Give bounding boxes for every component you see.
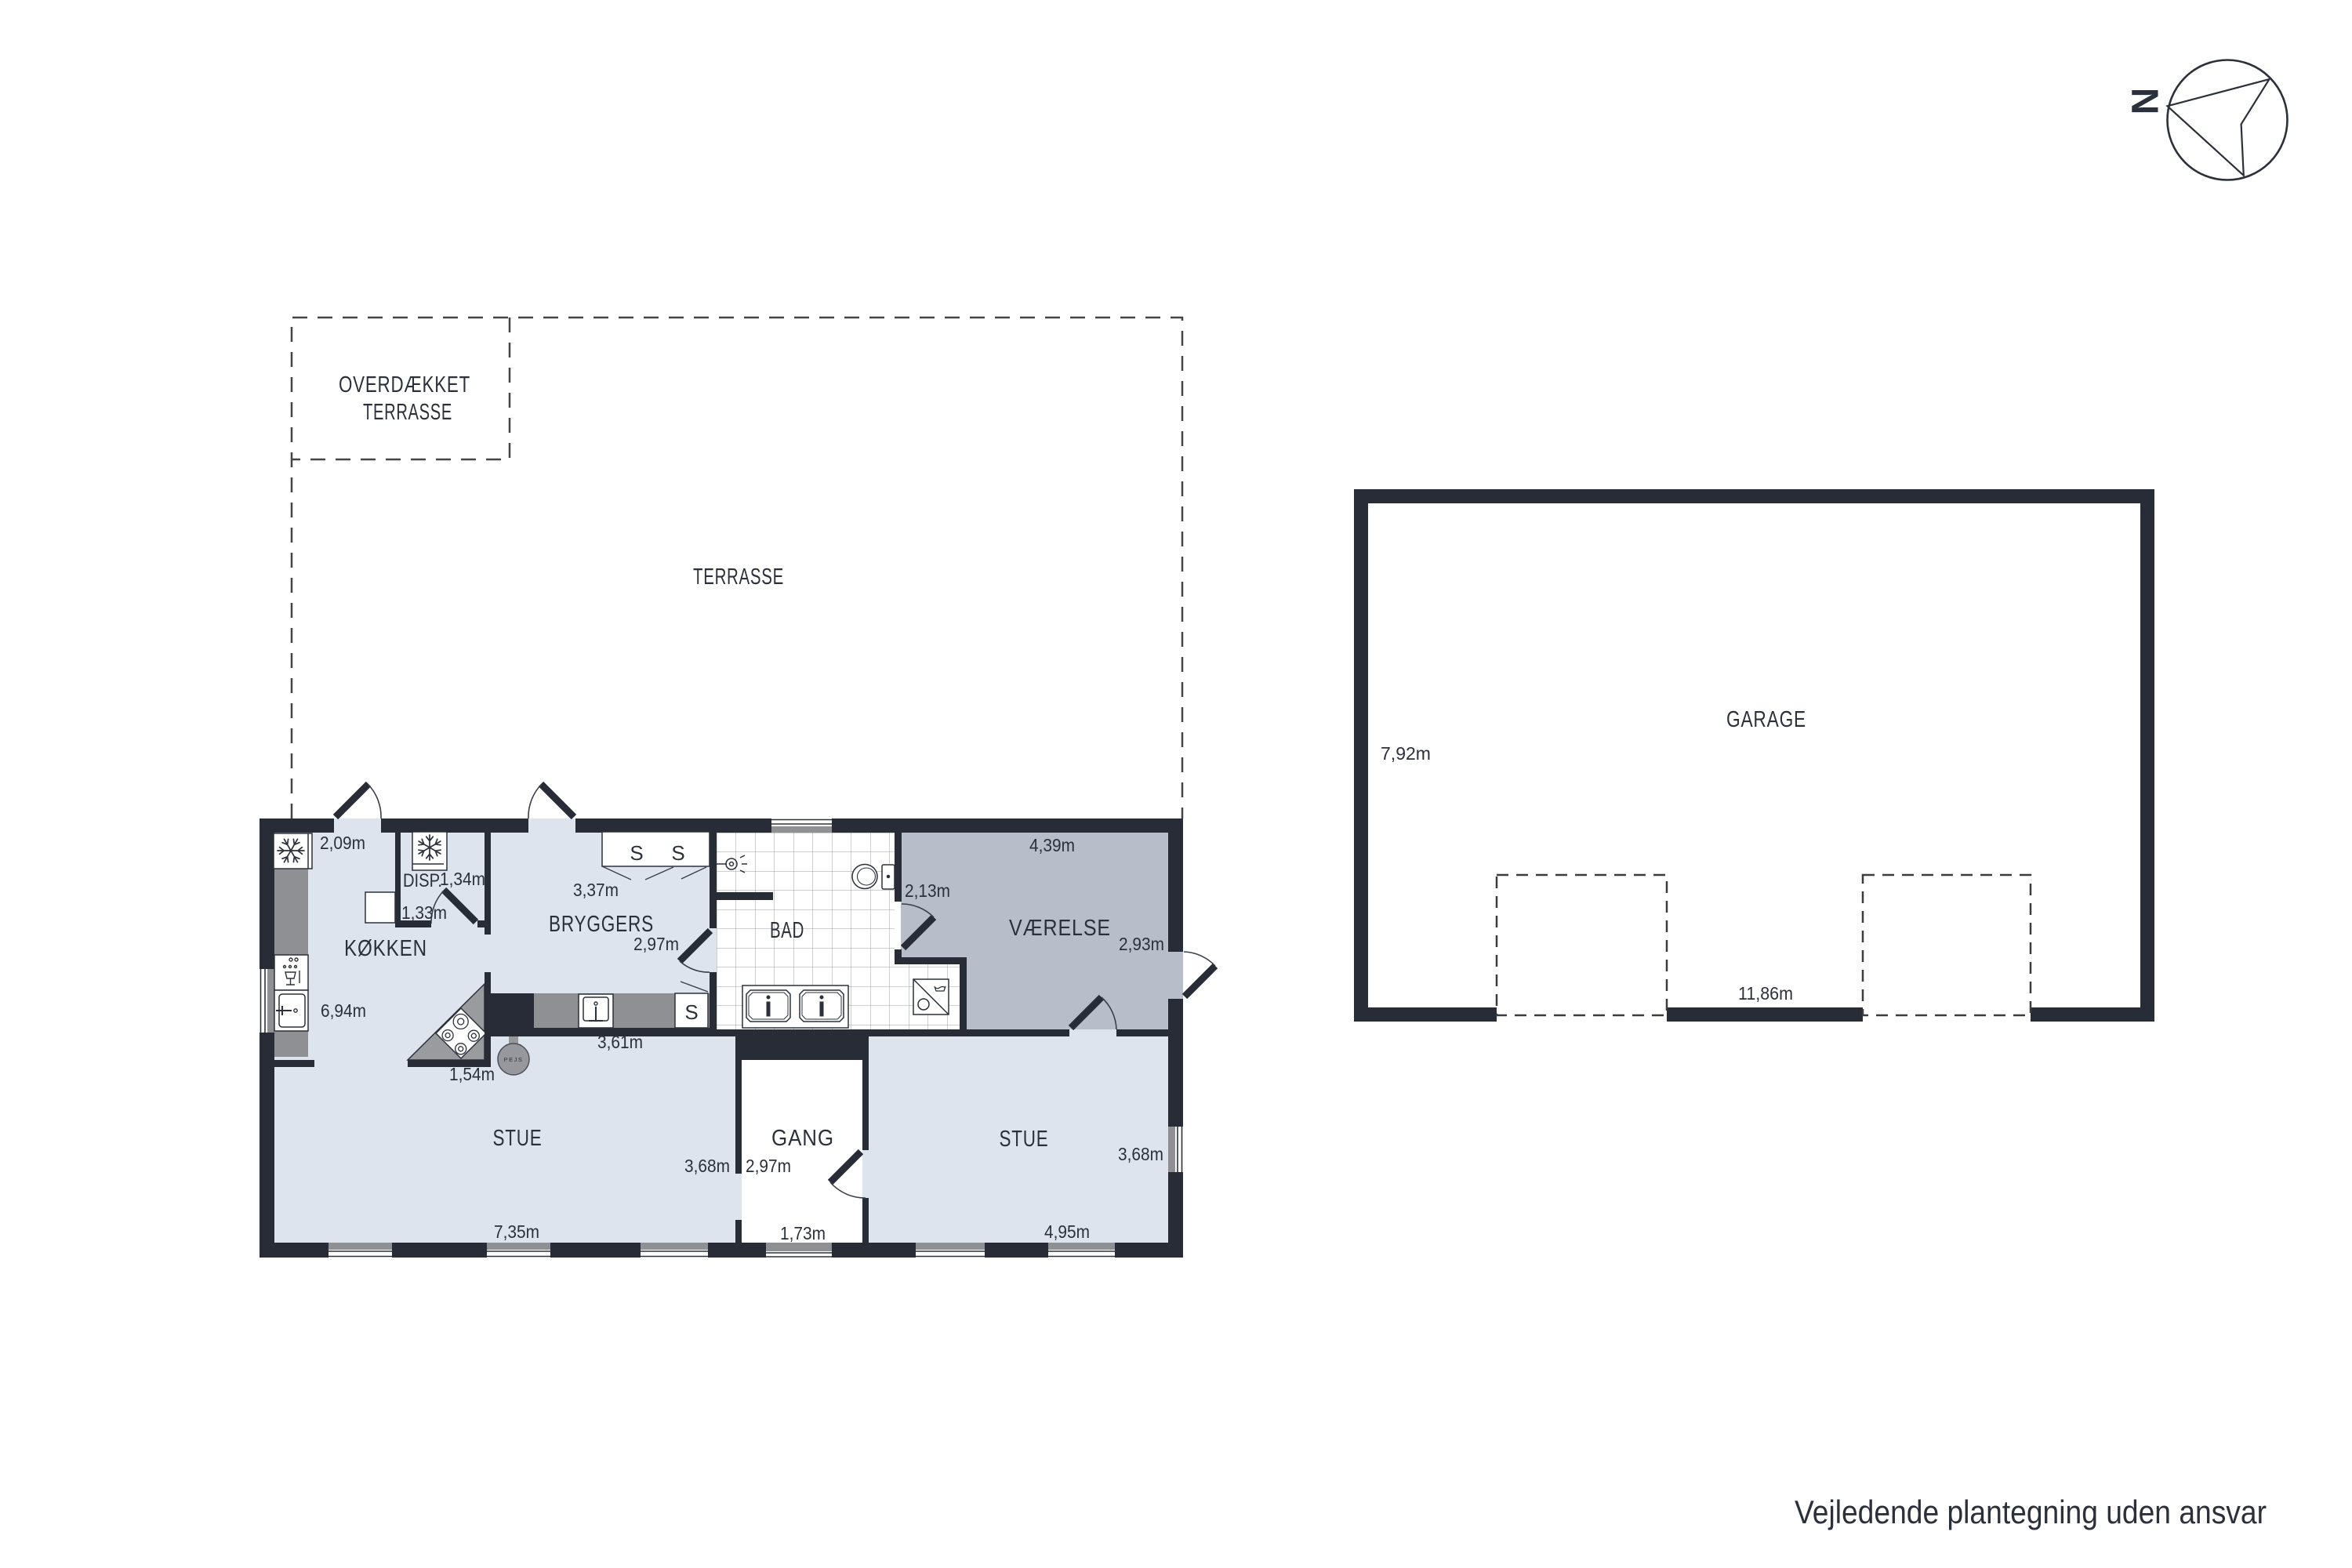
svg-text:OVERDÆKKET: OVERDÆKKET xyxy=(339,372,470,397)
svg-text:2,93m: 2,93m xyxy=(1119,934,1164,954)
svg-text:6,94m: 6,94m xyxy=(321,1000,366,1021)
svg-text:1,34m: 1,34m xyxy=(440,869,485,889)
svg-text:3,61m: 3,61m xyxy=(597,1032,643,1052)
svg-text:S: S xyxy=(630,841,643,865)
svg-text:TERRASSE: TERRASSE xyxy=(363,400,452,425)
svg-text:2,13m: 2,13m xyxy=(905,880,950,901)
svg-text:GANG: GANG xyxy=(771,1126,834,1151)
svg-text:2,09m: 2,09m xyxy=(320,833,365,853)
svg-text:7,92m: 7,92m xyxy=(1381,743,1431,764)
svg-text:3,37m: 3,37m xyxy=(573,880,619,900)
svg-text:Vejledende plantegning uden an: Vejledende plantegning uden ansvar xyxy=(1795,1494,2267,1530)
svg-text:1,54m: 1,54m xyxy=(449,1064,495,1084)
svg-text:4,39m: 4,39m xyxy=(1029,835,1075,855)
svg-text:11,86m: 11,86m xyxy=(1738,983,1793,1004)
svg-text:2,97m: 2,97m xyxy=(633,934,679,954)
svg-text:3,68m: 3,68m xyxy=(1118,1144,1163,1164)
svg-text:S: S xyxy=(684,1000,698,1024)
svg-text:TERRASSE: TERRASSE xyxy=(693,564,784,590)
svg-text:DISP.: DISP. xyxy=(403,870,442,891)
svg-text:2,97m: 2,97m xyxy=(746,1156,791,1176)
svg-text:VÆRELSE: VÆRELSE xyxy=(1009,916,1111,941)
svg-text:KØKKEN: KØKKEN xyxy=(344,936,427,961)
svg-text:GARAGE: GARAGE xyxy=(1726,707,1806,732)
svg-text:1,73m: 1,73m xyxy=(780,1223,826,1243)
svg-text:1,33m: 1,33m xyxy=(401,902,447,923)
svg-text:STUE: STUE xyxy=(493,1126,543,1151)
svg-text:7,35m: 7,35m xyxy=(494,1221,539,1242)
svg-text:S: S xyxy=(671,841,684,865)
svg-text:N: N xyxy=(2125,88,2167,115)
svg-text:4,95m: 4,95m xyxy=(1044,1221,1090,1242)
svg-text:PEJS: PEJS xyxy=(504,1056,524,1063)
svg-text:STUE: STUE xyxy=(1000,1127,1049,1152)
svg-text:3,68m: 3,68m xyxy=(684,1156,730,1176)
svg-text:BAD: BAD xyxy=(770,918,804,943)
